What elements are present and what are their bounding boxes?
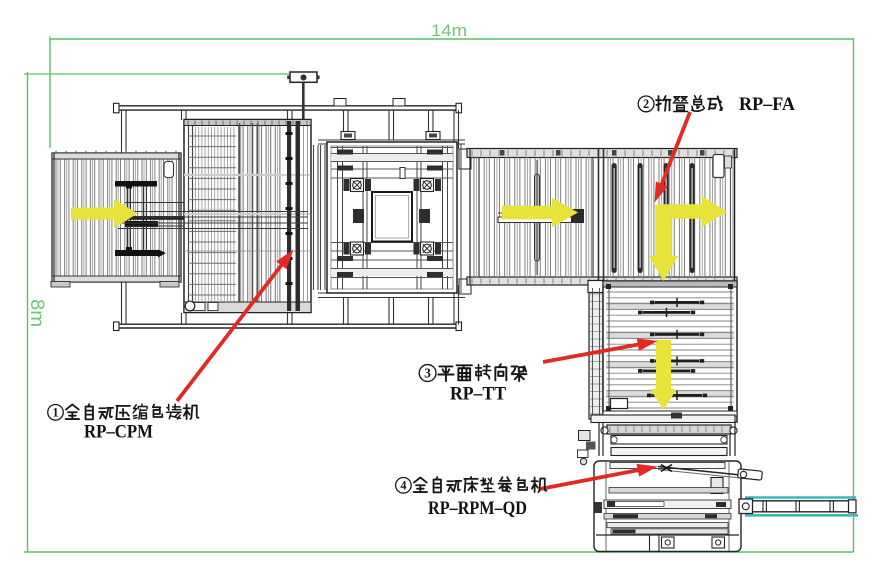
svg-text:4: 4 <box>400 478 406 492</box>
svg-text:RP–CPM: RP–CPM <box>84 422 153 443</box>
svg-text:1: 1 <box>52 405 58 419</box>
svg-text:RP–RPM–QD: RP–RPM–QD <box>428 499 527 519</box>
svg-text:2: 2 <box>643 97 649 111</box>
svg-text:RP–TT: RP–TT <box>450 385 507 405</box>
svg-text:RP–FA: RP–FA <box>739 95 796 115</box>
svg-text:8m: 8m <box>26 299 47 327</box>
svg-text:14m: 14m <box>431 22 467 40</box>
svg-text:3: 3 <box>424 365 431 380</box>
